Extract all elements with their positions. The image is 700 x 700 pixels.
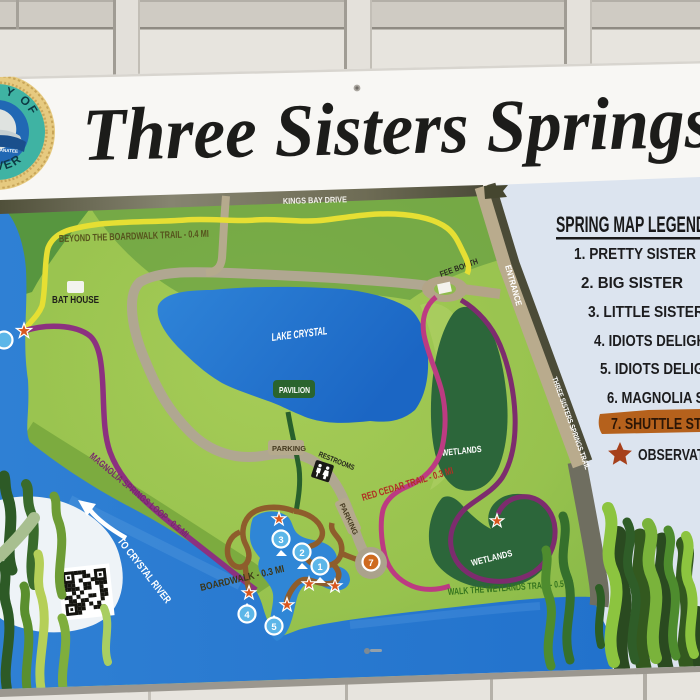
svg-text:4: 4	[244, 610, 250, 621]
svg-text:7: 7	[368, 558, 373, 569]
svg-text:3. LITTLE SISTER: 3. LITTLE SISTER	[588, 304, 700, 321]
svg-text:2. BIG SISTER: 2. BIG SISTER	[581, 275, 683, 292]
svg-text:Three Sisters Springs: Three Sisters Springs	[82, 81, 700, 177]
svg-text:1. PRETTY SISTER: 1. PRETTY SISTER	[574, 246, 696, 263]
svg-text:5: 5	[271, 622, 277, 633]
svg-text:KINGS BAY DRIVE: KINGS BAY DRIVE	[283, 194, 348, 206]
svg-text:2: 2	[299, 548, 304, 559]
svg-text:3: 3	[278, 535, 283, 546]
svg-text:BAT HOUSE: BAT HOUSE	[52, 294, 99, 306]
svg-text:OBSERVATI: OBSERVATI	[638, 447, 700, 464]
svg-text:7. SHUTTLE STO: 7. SHUTTLE STO	[611, 416, 700, 433]
svg-text:4. IDIOTS DELIGHT: 4. IDIOTS DELIGHT	[594, 333, 700, 350]
svg-text:6. MAGNOLIA SP: 6. MAGNOLIA SP	[607, 390, 700, 407]
svg-text:PAVILION: PAVILION	[279, 385, 310, 395]
svg-text:PARKING: PARKING	[272, 444, 306, 453]
svg-text:1: 1	[317, 562, 323, 573]
svg-text:SPRING MAP LEGEND: SPRING MAP LEGEND	[556, 212, 700, 237]
svg-text:5. IDIOTS DELIGH: 5. IDIOTS DELIGH	[600, 361, 700, 378]
